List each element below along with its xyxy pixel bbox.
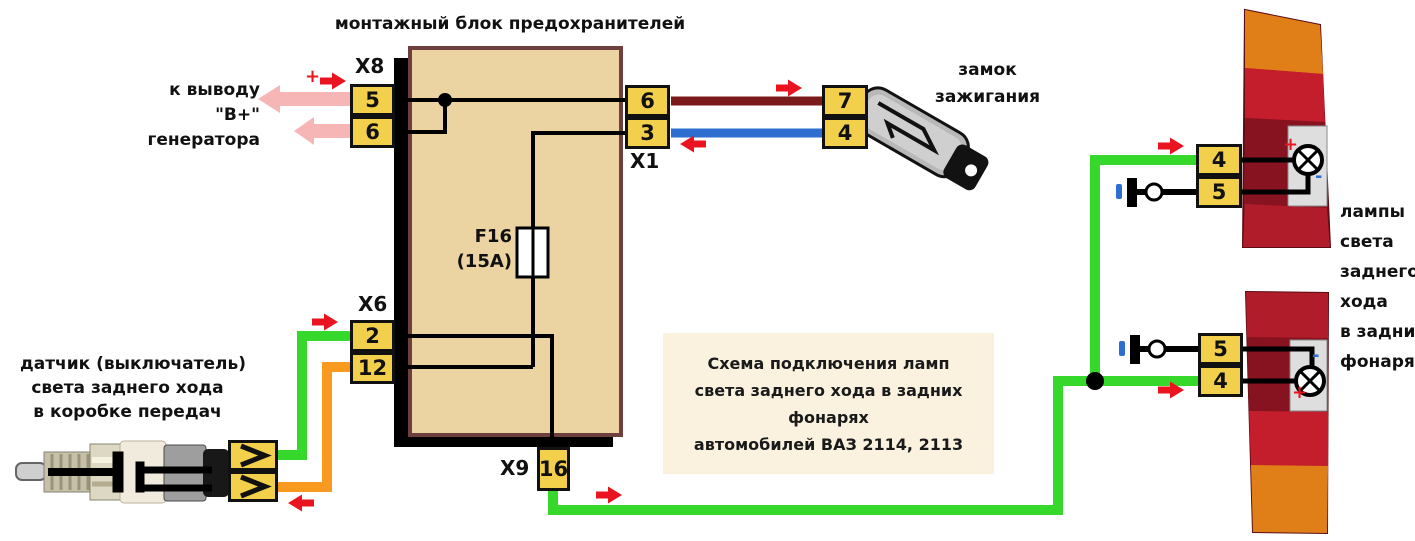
fuse-name: F16 — [428, 224, 512, 249]
lower-ground-symbol — [1119, 335, 1198, 364]
generator-label: к выводу "В+" генератора — [140, 78, 260, 153]
red-arrow-x6 — [312, 314, 338, 331]
chevron-icon — [231, 474, 275, 499]
generator-label-line2: "В+" — [140, 103, 260, 128]
generator-plus-sign: + — [305, 68, 320, 86]
lamps-label-line1: лампы — [1340, 197, 1415, 227]
connector-x6-pin-2: 2 — [350, 320, 395, 352]
diagram-title: монтажный блок предохранителей — [330, 14, 690, 34]
ignition-label-line2: зажигания — [915, 84, 1060, 111]
wire-green-sensor — [276, 336, 350, 455]
red-arrow-ignition-in — [776, 80, 802, 97]
connector-x1-pin-6: 6 — [625, 85, 670, 117]
wire-orange-sensor — [276, 367, 350, 487]
connector-ignition-pin-4: 4 — [822, 117, 868, 149]
reverse-light-sensor — [16, 441, 229, 503]
lower-bulb-minus: - — [1312, 347, 1319, 365]
connector-x8-pin-6: 6 — [350, 116, 395, 148]
sensor-label-line1: датчик (выключатель) — [20, 352, 235, 376]
sensor-plug-terminal-2 — [228, 471, 278, 502]
fuse-f16-symbol — [517, 228, 548, 277]
lamps-label-line3: заднего — [1340, 257, 1415, 287]
red-arrow-generator — [320, 73, 346, 90]
lamps-label-line6: фонарях — [1340, 347, 1415, 377]
connector-lower-lamp-pin-4: 4 — [1198, 365, 1243, 397]
chevron-icon — [231, 443, 275, 468]
generator-label-line1: к выводу — [140, 78, 260, 103]
upper-ground-symbol — [1116, 178, 1196, 207]
connector-x1-label: X1 — [630, 149, 659, 173]
fuse-rating: (15А) — [428, 249, 512, 274]
lower-tail-light — [1242, 292, 1328, 533]
red-direction-arrows — [288, 73, 1184, 512]
lamps-label-line5: в задних — [1340, 317, 1415, 347]
red-arrow-x9 — [596, 487, 622, 504]
fuse-label: F16 (15А) — [428, 224, 512, 274]
connector-upper-lamp-pin-4: 4 — [1196, 144, 1242, 176]
connector-x6-label: X6 — [358, 292, 387, 316]
upper-bulb-minus: - — [1315, 168, 1322, 186]
pink-arrow-down — [294, 117, 350, 145]
ignition-label: замок зажигания — [915, 57, 1060, 111]
sensor-plug-terminal-1 — [228, 440, 278, 471]
lamps-label: лампы света заднего хода в задних фонаря… — [1340, 197, 1415, 377]
connector-ignition-pin-7: 7 — [822, 85, 868, 117]
connector-x8-pin-5: 5 — [350, 84, 395, 116]
connector-x8-label: X8 — [355, 54, 384, 78]
junction-dot-block — [438, 93, 452, 107]
connector-x9-pin-16: 16 — [537, 447, 570, 491]
lamps-label-line4: хода — [1340, 287, 1415, 317]
wiring-diagram: Схема подключения ламп света заднего ход… — [0, 0, 1415, 541]
junction-dot-green — [1086, 372, 1104, 390]
connector-upper-lamp-pin-5: 5 — [1196, 176, 1242, 208]
connector-lower-lamp-pin-5: 5 — [1198, 333, 1243, 365]
red-arrow-ignition-out — [680, 136, 706, 153]
pink-arrow-up — [258, 85, 350, 113]
pink-arrows-generator — [258, 85, 350, 145]
lamps-label-line2: света — [1340, 227, 1415, 257]
sensor-label: датчик (выключатель) света заднего хода … — [20, 352, 235, 424]
connector-x6-pin-12: 12 — [350, 352, 395, 384]
ignition-label-line1: замок — [915, 57, 1060, 84]
upper-bulb-plus: + — [1283, 136, 1298, 154]
sensor-label-line2: света заднего хода — [20, 376, 235, 400]
connector-x9-label: X9 — [500, 456, 529, 480]
red-arrow-upper-lamp — [1158, 138, 1184, 155]
connector-x1-pin-3: 3 — [625, 117, 670, 149]
lower-bulb-plus: + — [1292, 384, 1307, 402]
red-arrow-sensor — [288, 495, 314, 512]
sensor-label-line3: в коробке передач — [20, 400, 235, 424]
generator-label-line3: генератора — [140, 128, 260, 153]
wire-green-main — [553, 381, 1198, 510]
upper-tail-light — [1242, 10, 1330, 247]
internal-circuit-lines — [408, 100, 627, 460]
